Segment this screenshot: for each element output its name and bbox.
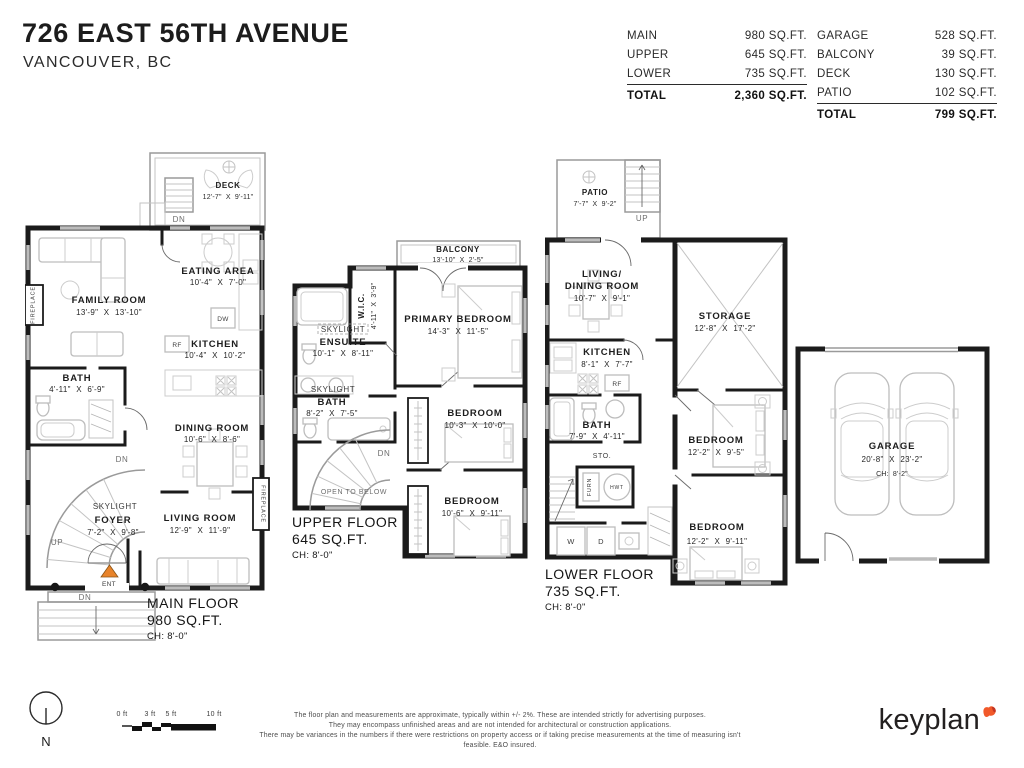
room-label: BALCONY: [436, 245, 480, 254]
upper-floor-plan: BALCONY 13'-10" X 2'-5" W.I.C. 4'-11" X …: [290, 238, 535, 563]
room-dims: 14'-3" X 11'-5": [428, 327, 488, 336]
floor-area: 980 SQ.FT.: [147, 612, 223, 628]
area-value: 130 SQ.FT.: [935, 68, 997, 80]
room-dims: 12'-2" X 9'-11": [687, 537, 747, 546]
interior-area-table: MAIN980 SQ.FT. UPPER645 SQ.FT. LOWER735 …: [627, 27, 807, 106]
room-label: KITCHEN: [191, 339, 239, 350]
disclaimer: The floor plan and measurements are appr…: [250, 711, 750, 751]
room-dims: 8'-2" X 7'-5": [306, 409, 358, 418]
room-dims: 10'-6" X 9'-11": [442, 509, 502, 518]
storage-closet-label: STO.: [593, 453, 612, 460]
scale-tick: 10 ft: [206, 711, 221, 718]
floor-ceiling: CH: 8'-0": [147, 631, 188, 642]
area-label: LOWER: [627, 68, 671, 80]
area-label: TOTAL: [817, 109, 856, 121]
area-label: BALCONY: [817, 49, 875, 61]
room-dims: 8'-1" X 7'-7": [581, 360, 633, 369]
area-label: GARAGE: [817, 30, 869, 42]
area-row: PATIO102 SQ.FT.: [817, 83, 997, 102]
room-label: PRIMARY BEDROOM: [404, 314, 512, 325]
area-value: 2,360 SQ.FT.: [734, 90, 807, 102]
room-dims: 4'-11" X 6'-9": [49, 385, 105, 394]
scale-tick: 5 ft: [166, 711, 177, 718]
room-label: DINING ROOM: [175, 423, 249, 434]
room-label: BEDROOM: [688, 435, 743, 446]
brand-logo: keyplan: [879, 701, 998, 739]
hot-water-tank-label: HWT: [610, 485, 624, 491]
area-total-row: TOTAL2,360 SQ.FT.: [627, 84, 807, 105]
room-dims: 20'-8" X 23'-2": [861, 455, 922, 464]
room-dims: 7'-2" X 9'-8": [87, 528, 139, 537]
lower-patio: PATIO 7'-7" X 9'-2" UP: [557, 160, 660, 238]
area-row: MAIN980 SQ.FT.: [627, 27, 807, 46]
fireplace-left: FIREPLACE: [25, 285, 43, 325]
fireplace-label: FIREPLACE: [31, 286, 37, 324]
main-floor-plan: DECK 12'-7" X 9'-11" DN FIREPLACE FIREPL…: [25, 140, 295, 645]
room-dims: 12'-7" X 9'-11": [203, 194, 254, 201]
porch-column: [51, 583, 59, 591]
room-dims: 10'-6" X 8'-6": [184, 435, 240, 444]
living-room-furniture: [157, 558, 249, 584]
closets: [408, 398, 428, 554]
room-label: FOYER: [95, 515, 132, 526]
porch-column: [141, 583, 149, 591]
fridge-label: RF: [172, 342, 181, 349]
main-staircase: DN UP: [47, 455, 145, 568]
room-ceiling: CH: 8'-2": [876, 471, 908, 478]
room-dims: 13'-9" X 13'-10": [76, 308, 142, 317]
stair-label: UP: [636, 214, 648, 223]
floor-name: UPPER FLOOR: [292, 514, 398, 530]
disclaimer-line: The floor plan and measurements are appr…: [250, 711, 750, 721]
entry-label: ENT: [102, 581, 116, 588]
disclaimer-line: They may encompass unfinished areas and …: [250, 721, 750, 731]
area-value: 39 SQ.FT.: [942, 49, 997, 61]
stair-label: DN: [378, 449, 391, 458]
area-label: PATIO: [817, 87, 852, 99]
dishwasher-label: DW: [217, 316, 229, 323]
north-label: N: [41, 734, 50, 749]
area-label: DECK: [817, 68, 851, 80]
area-row: GARAGE528 SQ.FT.: [817, 27, 997, 46]
brand-wordmark: keyplan: [879, 701, 980, 739]
room-label: GARAGE: [869, 441, 916, 452]
area-value: 645 SQ.FT.: [745, 49, 807, 61]
area-value: 980 SQ.FT.: [745, 30, 807, 42]
area-value: 528 SQ.FT.: [935, 30, 997, 42]
room-label: BATH: [63, 373, 92, 384]
stair-label: DN: [79, 593, 92, 602]
dryer-label: D: [598, 537, 604, 546]
room-label: BATH: [583, 420, 612, 431]
garage-plan: GARAGE 20'-8" X 23'-2" CH: 8'-2": [795, 345, 990, 565]
room-dims: 10'-4" X 7'-0": [190, 278, 246, 287]
page-subtitle: VANCOUVER, BC: [23, 54, 172, 72]
wic: W.I.C. 4'-11" X 3'-9": [357, 282, 378, 329]
area-row: UPPER645 SQ.FT.: [627, 46, 807, 65]
room-label: KITCHEN: [583, 347, 631, 358]
kitchen-fixtures: DW RF: [165, 234, 262, 396]
area-value: 735 SQ.FT.: [745, 68, 807, 80]
upper-bath-fixtures: [303, 418, 390, 440]
area-label: MAIN: [627, 30, 657, 42]
room-dims: 12'-9" X 11'-9": [170, 526, 230, 535]
exterior-area-table: GARAGE528 SQ.FT. BALCONY39 SQ.FT. DECK13…: [817, 27, 997, 125]
room-label: EATING AREA: [181, 266, 254, 277]
furnace-room: FURN HWT: [583, 473, 630, 501]
entry-marker: [101, 565, 118, 577]
room-label: BATH: [318, 397, 347, 408]
area-row: DECK130 SQ.FT.: [817, 65, 997, 84]
fireplace-right: FIREPLACE: [253, 478, 269, 530]
main-bath-fixtures: [36, 396, 113, 440]
room-label: PATIO: [582, 188, 608, 197]
skylight-label: SKYLIGHT: [93, 502, 137, 511]
room-label: BEDROOM: [447, 408, 502, 419]
room-dims: 13'-10" X 2'-5": [432, 257, 484, 264]
fireplace-label: FIREPLACE: [260, 485, 266, 523]
north-arrow: N: [24, 688, 72, 752]
floor-area: 735 SQ.FT.: [545, 583, 621, 599]
floor-label-lower: LOWER FLOOR 735 SQ.FT. CH: 8'-0": [545, 566, 654, 613]
room-dims: 4'-11" X 3'-9": [371, 282, 378, 329]
floor-area: 645 SQ.FT.: [292, 531, 368, 547]
room-label: FAMILY ROOM: [72, 295, 147, 306]
stair-label: DN: [173, 215, 186, 224]
area-value: 102 SQ.FT.: [935, 87, 997, 99]
area-label: UPPER: [627, 49, 669, 61]
laundry: W D: [557, 507, 672, 555]
room-dims: 10'-4" X 10'-2": [184, 351, 245, 360]
room-label: LIVING/: [582, 269, 622, 280]
furnace-label: FURN: [587, 478, 593, 496]
scale-tick: 3 ft: [145, 711, 156, 718]
lower-floor-plan: PATIO 7'-7" X 9'-2" UP LIVING/ DINING RO…: [545, 155, 790, 615]
skylight-label: SKYLIGHT: [321, 325, 365, 334]
washer-label: W: [567, 537, 575, 546]
scale-bar: 0 ft 3 ft 5 ft 10 ft: [114, 706, 234, 740]
bedroom2-furniture: [454, 516, 510, 556]
room-label: STORAGE: [699, 311, 751, 322]
disclaimer-line: There may be variances in the numbers if…: [250, 731, 750, 751]
brand-mark-icon: [982, 704, 998, 719]
area-value: 799 SQ.FT.: [935, 109, 997, 121]
floor-name: MAIN FLOOR: [147, 595, 239, 611]
area-label: TOTAL: [627, 90, 666, 102]
stair-label: UP: [51, 538, 63, 547]
room-label: DINING ROOM: [565, 281, 639, 292]
area-row: LOWER735 SQ.FT.: [627, 65, 807, 84]
scale-tick: 0 ft: [117, 711, 128, 718]
room-dims: 7'-7" X 9'-2": [573, 201, 616, 208]
room-dims: 7'-9" X 4'-11": [569, 432, 625, 441]
room-label: BEDROOM: [444, 496, 499, 507]
room-dims: 10'-7" X 9'-1": [574, 294, 630, 303]
room-label: BEDROOM: [689, 522, 744, 533]
room-dims: 10'-3" X 10'-0": [444, 421, 505, 430]
floor-ceiling: CH: 8'-0": [545, 602, 586, 613]
area-row: BALCONY39 SQ.FT.: [817, 46, 997, 65]
room-label: ENSUITE: [320, 337, 367, 348]
room-label: LIVING ROOM: [164, 513, 237, 524]
room-label: W.I.C.: [357, 293, 366, 318]
skylight-label: SKYLIGHT: [311, 385, 355, 394]
floor-label-main: MAIN FLOOR 980 SQ.FT. CH: 8'-0": [147, 595, 239, 642]
floor-plan-sheet: 726 EAST 56TH AVENUE VANCOUVER, BC MAIN9…: [0, 0, 1024, 768]
floor-label-upper: UPPER FLOOR 645 SQ.FT. CH: 8'-0": [292, 514, 398, 561]
room-dims: 10'-1" X 8'-11": [313, 349, 373, 358]
room-dims: 12'-8" X 17'-2": [694, 324, 755, 333]
fridge-label: RF: [612, 381, 621, 388]
room-label: DECK: [215, 181, 240, 190]
main-deck: DECK 12'-7" X 9'-11" DN: [140, 153, 265, 230]
lower-staircase: UP: [549, 477, 575, 535]
open-to-below-label: OPEN TO BELOW: [321, 489, 387, 496]
stair-label: DN: [116, 455, 129, 464]
area-total-row: TOTAL799 SQ.FT.: [817, 103, 997, 124]
room-dims: 12'-2" X 9'-5": [688, 448, 744, 457]
floor-ceiling: CH: 8'-0": [292, 550, 333, 561]
bedroom2-furniture: [673, 547, 759, 580]
entry: ENT DN: [38, 544, 155, 640]
floor-name: LOWER FLOOR: [545, 566, 654, 582]
page-title: 726 EAST 56TH AVENUE: [22, 18, 349, 49]
